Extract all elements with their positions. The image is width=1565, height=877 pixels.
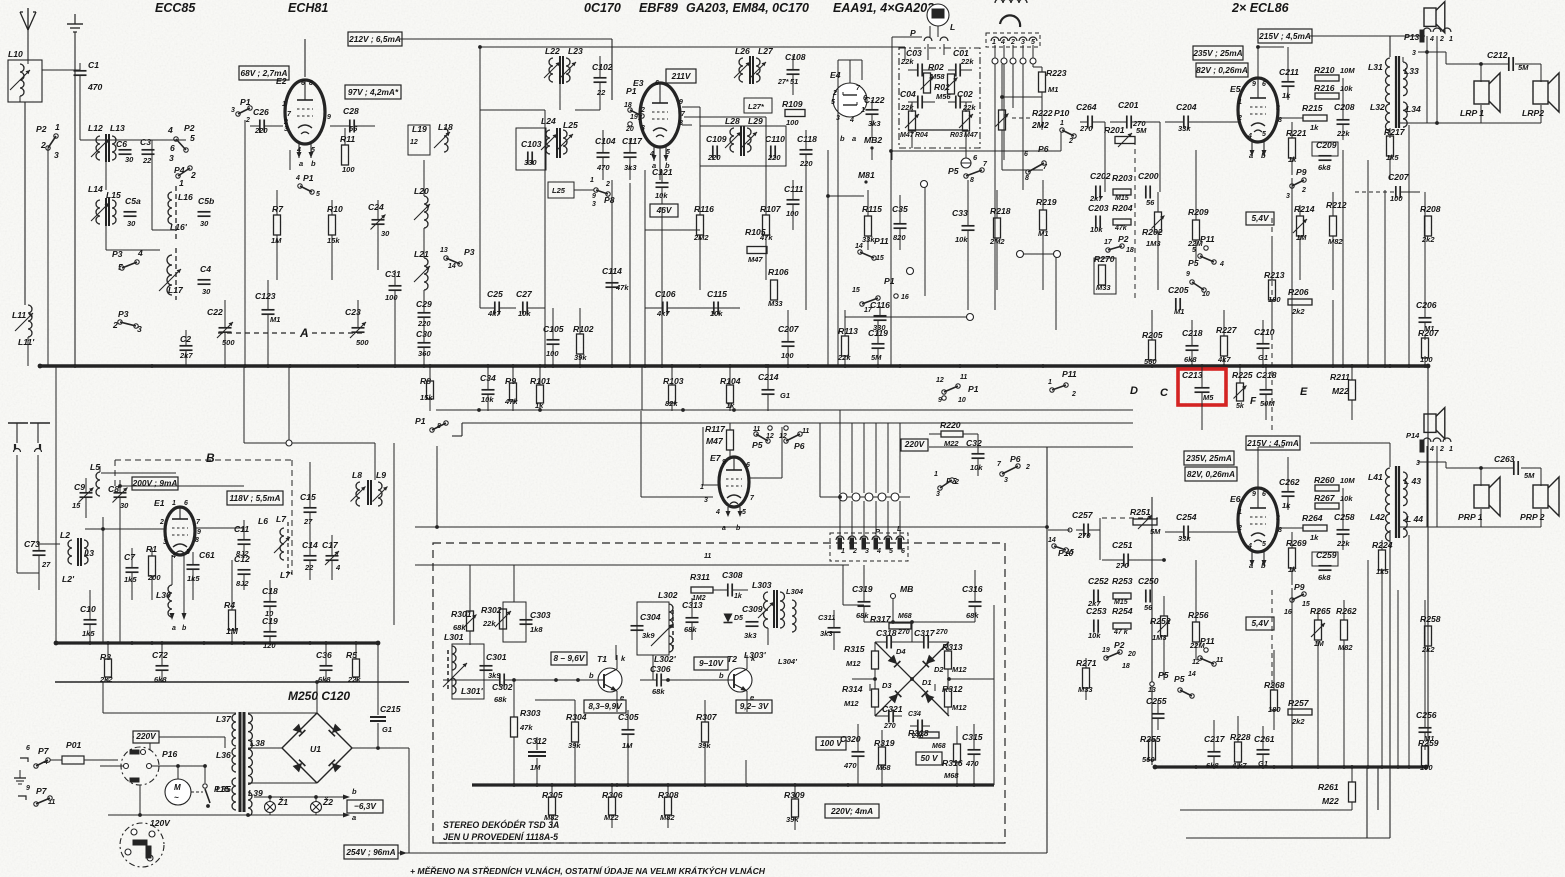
svg-text:3: 3 — [169, 153, 174, 163]
svg-text:C258: C258 — [1334, 512, 1355, 522]
svg-text:R220: R220 — [940, 420, 961, 430]
svg-text:9: 9 — [679, 99, 683, 106]
svg-text:R270: R270 — [1094, 254, 1115, 264]
svg-text:C106: C106 — [655, 289, 676, 299]
svg-text:180: 180 — [1268, 705, 1281, 714]
svg-text:8,3–9,9V: 8,3–9,9V — [588, 701, 623, 711]
svg-text:a: a — [722, 525, 726, 532]
svg-text:5: 5 — [1262, 131, 1266, 138]
svg-text:E1: E1 — [154, 498, 165, 508]
svg-text:3: 3 — [1276, 515, 1280, 522]
svg-text:C117: C117 — [622, 136, 643, 146]
svg-text:4: 4 — [1429, 446, 1434, 453]
svg-text:20: 20 — [1127, 651, 1136, 658]
svg-text:R106: R106 — [768, 267, 789, 277]
svg-text:L20: L20 — [414, 186, 429, 196]
svg-text:L9: L9 — [376, 470, 386, 480]
svg-text:L24: L24 — [541, 116, 556, 126]
svg-text:R314: R314 — [842, 684, 863, 694]
svg-text:15k: 15k — [327, 236, 340, 245]
svg-text:51: 51 — [790, 77, 798, 86]
svg-text:4: 4 — [1219, 261, 1224, 268]
svg-text:L 44: L 44 — [1406, 514, 1423, 524]
svg-text:C: C — [1160, 387, 1169, 399]
svg-text:R256: R256 — [1188, 610, 1209, 620]
svg-text:211V: 211V — [671, 71, 692, 81]
svg-text:15: 15 — [876, 255, 884, 262]
svg-text:47k: 47k — [504, 397, 518, 406]
svg-text:C3̇4: C3̇4 — [908, 711, 921, 718]
svg-text:1k5: 1k5 — [82, 629, 95, 638]
svg-text:a: a — [1249, 561, 1253, 570]
svg-text:5: 5 — [190, 133, 195, 143]
svg-text:R311: R311 — [690, 572, 710, 582]
svg-text:220: 220 — [767, 153, 781, 162]
svg-text:4: 4 — [1000, 39, 1005, 46]
svg-text:a: a — [172, 625, 176, 632]
svg-text:6: 6 — [301, 80, 305, 87]
svg-text:T1: T1 — [597, 654, 607, 664]
svg-text:2: 2 — [112, 320, 118, 330]
svg-text:68k: 68k — [453, 623, 466, 632]
svg-text:3: 3 — [54, 150, 59, 160]
svg-text:1: 1 — [1238, 509, 1242, 516]
svg-text:2k7: 2k7 — [1089, 194, 1103, 203]
svg-text:C5b: C5b — [198, 196, 214, 206]
svg-text:10k: 10k — [970, 463, 983, 472]
svg-text:4: 4 — [649, 151, 654, 158]
svg-text:97V ; 4,2mA*: 97V ; 4,2mA* — [348, 87, 399, 97]
svg-text:C316: C316 — [962, 584, 983, 594]
svg-text:1k5: 1k5 — [124, 575, 137, 584]
svg-text:C256: C256 — [1416, 710, 1437, 720]
svg-text:1M3: 1M3 — [1152, 633, 1167, 642]
svg-text:C12: C12 — [234, 554, 250, 564]
svg-text:560: 560 — [1144, 357, 1157, 366]
svg-text:47 k: 47 k — [1113, 629, 1129, 636]
svg-text:8 – 9,6V: 8 – 9,6V — [554, 653, 586, 663]
svg-text:14: 14 — [448, 263, 456, 270]
svg-text:4k7: 4k7 — [487, 309, 501, 318]
svg-text:C253: C253 — [1086, 606, 1107, 616]
svg-text:2: 2 — [852, 548, 857, 555]
svg-text:D5: D5 — [734, 615, 743, 622]
svg-text:C11: C11 — [234, 524, 249, 534]
svg-text:30: 30 — [381, 229, 390, 238]
svg-text:−6,3V: −6,3V — [354, 801, 377, 811]
svg-text:2M2: 2M2 — [693, 233, 709, 242]
svg-text:P3: P3 — [464, 247, 475, 257]
svg-text:LRP2: LRP2 — [1522, 108, 1544, 118]
svg-text:4: 4 — [1429, 36, 1434, 43]
svg-text:200: 200 — [147, 573, 161, 582]
svg-text:13: 13 — [1148, 687, 1156, 694]
svg-text:R212: R212 — [1326, 200, 1347, 210]
svg-text:R204: R204 — [1112, 203, 1133, 213]
svg-text:C15: C15 — [300, 492, 316, 502]
svg-text:30: 30 — [125, 155, 134, 164]
svg-text:220: 220 — [254, 126, 268, 135]
svg-text:L14: L14 — [88, 184, 103, 194]
svg-text:220: 220 — [707, 153, 721, 162]
svg-text:C312: C312 — [526, 736, 547, 746]
svg-text:a: a — [352, 813, 356, 822]
svg-text:11: 11 — [1216, 657, 1223, 664]
svg-text:L25: L25 — [552, 186, 566, 195]
svg-text:R211: R211 — [1330, 372, 1350, 382]
svg-text:a: a — [852, 134, 856, 143]
svg-text:MB: MB — [900, 584, 913, 594]
svg-text:2: 2 — [40, 140, 46, 150]
svg-text:M12: M12 — [844, 699, 859, 708]
svg-text:E6: E6 — [1230, 494, 1241, 504]
svg-text:5M: 5M — [1136, 126, 1147, 135]
svg-text:R262: R262 — [1336, 606, 1357, 616]
svg-text:C207: C207 — [1388, 172, 1410, 182]
svg-text:4: 4 — [1247, 543, 1252, 550]
svg-text:1k: 1k — [1282, 91, 1291, 100]
svg-text:E4: E4 — [830, 70, 841, 80]
svg-text:R201: R201 — [1104, 125, 1125, 135]
svg-text:2k2: 2k2 — [1421, 645, 1435, 654]
svg-text:R251: R251 — [1130, 507, 1151, 517]
svg-text:5,4V: 5,4V — [1251, 618, 1270, 628]
svg-text:R9: R9 — [505, 376, 516, 386]
svg-text:R222: R222 — [1032, 108, 1053, 118]
svg-text:10M: 10M — [1340, 476, 1355, 485]
svg-text:R304: R304 — [566, 712, 587, 722]
svg-text:3: 3 — [1286, 193, 1290, 200]
svg-text:F: F — [1250, 396, 1257, 407]
svg-text:1M3: 1M3 — [1146, 239, 1161, 248]
svg-text:5: 5 — [186, 549, 190, 556]
svg-text:6k8: 6k8 — [1318, 163, 1331, 172]
svg-text:Ž1: Ž1 — [277, 796, 288, 807]
svg-text:C309: C309 — [742, 604, 763, 614]
svg-text:C217: C217 — [1204, 734, 1226, 744]
svg-text:P1: P1 — [884, 276, 895, 286]
svg-text:C207: C207 — [778, 324, 800, 334]
svg-text:L13: L13 — [110, 123, 125, 133]
svg-text:L27*: L27* — [748, 102, 765, 111]
svg-text:R7: R7 — [272, 204, 284, 214]
svg-text:2k2: 2k2 — [99, 675, 113, 684]
svg-text:JEN U PROVEDENÍ 1118A-5: JEN U PROVEDENÍ 1118A-5 — [443, 832, 558, 842]
svg-text:M1: M1 — [270, 315, 280, 324]
svg-text:C200: C200 — [1138, 171, 1159, 181]
svg-text:16: 16 — [901, 294, 909, 301]
svg-text:C110: C110 — [765, 134, 785, 144]
svg-text:3: 3 — [1004, 477, 1008, 484]
svg-text:2: 2 — [283, 119, 288, 126]
svg-text:L11': L11' — [18, 337, 35, 347]
svg-text:E5: E5 — [1230, 84, 1241, 94]
svg-text:14: 14 — [855, 243, 863, 250]
svg-text:M15: M15 — [1114, 599, 1128, 606]
svg-text:P5: P5 — [752, 440, 763, 450]
svg-text:R113: R113 — [838, 326, 858, 336]
svg-text:R115: R115 — [862, 204, 882, 214]
svg-text:5M: 5M — [1524, 471, 1535, 480]
svg-text:C262: C262 — [1279, 477, 1300, 487]
svg-text:1k: 1k — [1288, 565, 1297, 574]
svg-text:8: 8 — [679, 120, 683, 127]
svg-text:M81: M81 — [858, 170, 875, 180]
svg-text:2: 2 — [1439, 36, 1444, 43]
svg-text:4: 4 — [335, 563, 341, 572]
svg-text:10M: 10M — [1340, 66, 1355, 75]
svg-text:R219: R219 — [1036, 197, 1057, 207]
svg-text:M47: M47 — [900, 132, 915, 139]
svg-text:C208: C208 — [1334, 102, 1355, 112]
svg-text:a: a — [1249, 151, 1253, 160]
svg-text:39k: 39k — [786, 815, 799, 824]
svg-text:2: 2 — [954, 479, 959, 486]
svg-text:270: 270 — [935, 629, 948, 636]
svg-text:R105: R105 — [745, 227, 766, 237]
svg-text:11: 11 — [704, 553, 711, 560]
svg-text:1: 1 — [934, 471, 938, 478]
svg-text:3: 3 — [284, 126, 288, 133]
svg-text:10k: 10k — [1340, 494, 1353, 503]
svg-text:P2: P2 — [184, 123, 195, 133]
svg-text:R223: R223 — [1046, 68, 1067, 78]
svg-text:22k: 22k — [837, 353, 851, 362]
svg-text:1M: 1M — [530, 763, 541, 772]
svg-text:L18: L18 — [438, 122, 453, 132]
svg-text:6: 6 — [901, 548, 905, 555]
svg-text:C317: C317 — [914, 628, 936, 638]
svg-text:22k: 22k — [482, 619, 496, 628]
svg-text:R216: R216 — [1314, 83, 1335, 93]
svg-text:100: 100 — [1420, 355, 1433, 364]
svg-text:C24: C24 — [368, 202, 384, 212]
svg-text:3k3: 3k3 — [868, 119, 881, 128]
svg-text:R258: R258 — [1420, 614, 1441, 624]
svg-text:L303: L303 — [752, 580, 772, 590]
svg-text:b: b — [311, 159, 316, 168]
svg-text:P15: P15 — [214, 784, 230, 794]
svg-text:GA203, EM84, 0C170: GA203, EM84, 0C170 — [686, 1, 809, 15]
svg-text:30: 30 — [120, 501, 129, 510]
svg-text:100: 100 — [385, 293, 398, 302]
svg-text:R228: R228 — [1230, 732, 1251, 742]
svg-text:P11: P11 — [1200, 234, 1215, 244]
svg-text:500: 500 — [222, 338, 235, 347]
svg-text:50 V: 50 V — [920, 753, 939, 763]
svg-text:L7: L7 — [276, 514, 287, 524]
svg-text:P11: P11 — [874, 236, 889, 246]
svg-text:9: 9 — [327, 114, 331, 121]
svg-text:R209: R209 — [1188, 207, 1209, 217]
svg-text:22k: 22k — [900, 57, 914, 66]
svg-text:C264: C264 — [1076, 102, 1097, 112]
svg-text:2: 2 — [1071, 391, 1076, 398]
svg-text:C102: C102 — [592, 62, 613, 72]
svg-text:M22: M22 — [1332, 386, 1349, 396]
svg-text:6: 6 — [746, 462, 750, 469]
svg-text:L31: L31 — [1368, 62, 1383, 72]
svg-text:C25: C25 — [487, 289, 503, 299]
svg-text:1k: 1k — [1288, 155, 1297, 164]
svg-text:STEREO DEKÓDÉR TSD 3A: STEREO DEKÓDÉR TSD 3A — [443, 819, 559, 830]
svg-text:C205: C205 — [1168, 285, 1189, 295]
svg-text:2: 2 — [1237, 525, 1242, 532]
svg-text:3: 3 — [1416, 460, 1420, 467]
svg-text:L32: L32 — [1370, 102, 1385, 112]
svg-text:47k: 47k — [519, 723, 533, 732]
svg-text:R10: R10 — [327, 204, 343, 214]
svg-text:R210: R210 — [1314, 65, 1335, 75]
svg-text:C4: C4 — [200, 264, 211, 274]
svg-text:2: 2 — [1301, 187, 1306, 194]
svg-text:P7: P7 — [38, 746, 50, 756]
svg-text:R260: R260 — [1314, 475, 1335, 485]
svg-text:4: 4 — [167, 125, 173, 135]
svg-text:R218: R218 — [990, 206, 1011, 216]
svg-text:470: 470 — [843, 761, 857, 770]
svg-text:1: 1 — [1060, 120, 1064, 127]
svg-text:5: 5 — [742, 509, 746, 516]
svg-text:9–10V: 9–10V — [699, 658, 724, 668]
svg-text:C26: C26 — [253, 107, 269, 117]
svg-text:100: 100 — [1390, 194, 1403, 203]
svg-text:100: 100 — [1420, 763, 1433, 772]
svg-text:C212: C212 — [1487, 50, 1508, 60]
svg-text:M1: M1 — [1174, 307, 1184, 316]
svg-text:6: 6 — [1262, 81, 1266, 88]
svg-text:14: 14 — [1188, 671, 1196, 678]
svg-text:2k2: 2k2 — [1421, 235, 1435, 244]
svg-text:C308: C308 — [722, 570, 743, 580]
svg-text:1M: 1M — [1314, 641, 1324, 648]
svg-text:5: 5 — [666, 149, 670, 156]
svg-text:C315: C315 — [962, 732, 983, 742]
svg-text:100: 100 — [342, 165, 355, 174]
svg-text:L302': L302' — [654, 654, 677, 664]
svg-text:L303': L303' — [744, 650, 767, 660]
svg-text:C302: C302 — [492, 682, 513, 692]
svg-text:5M: 5M — [1150, 527, 1161, 536]
svg-text:3: 3 — [1021, 39, 1025, 46]
svg-text:C04: C04 — [900, 89, 916, 99]
svg-text:3: 3 — [641, 125, 645, 132]
svg-text:C301: C301 — [486, 652, 507, 662]
svg-text:3: 3 — [592, 201, 596, 208]
svg-text:R207: R207 — [1418, 328, 1440, 338]
svg-text:L33: L33 — [1404, 66, 1419, 76]
svg-text:C257: C257 — [1072, 510, 1094, 520]
svg-text:P16: P16 — [162, 749, 178, 759]
svg-text:G1: G1 — [382, 725, 392, 734]
svg-text:C201: C201 — [1118, 100, 1139, 110]
svg-text:82V, 0,26mA: 82V, 0,26mA — [1187, 469, 1235, 479]
svg-text:P1: P1 — [968, 384, 979, 394]
svg-text:P3: P3 — [118, 309, 129, 319]
svg-text:b: b — [589, 671, 594, 680]
svg-text:6: 6 — [184, 500, 188, 507]
svg-text:8: 8 — [195, 537, 199, 544]
svg-text:R213: R213 — [1264, 270, 1285, 280]
svg-text:5,4V: 5,4V — [1251, 213, 1270, 223]
svg-text:C251: C251 — [1112, 540, 1133, 550]
svg-text:C23: C23 — [345, 307, 361, 317]
svg-text:10k: 10k — [518, 309, 531, 318]
svg-text:C27: C27 — [516, 289, 533, 299]
svg-text:14: 14 — [1048, 537, 1056, 544]
svg-text:8: 8 — [309, 80, 313, 87]
svg-text:12: 12 — [936, 377, 944, 384]
svg-text:270: 270 — [1077, 531, 1091, 540]
svg-text:500: 500 — [356, 338, 369, 347]
svg-text:560: 560 — [1142, 755, 1155, 764]
svg-text:R117: R117 — [705, 424, 726, 434]
svg-text:G1: G1 — [780, 391, 790, 400]
svg-text:3: 3 — [1412, 50, 1416, 57]
svg-text:C215: C215 — [380, 704, 401, 714]
svg-text:1k5: 1k5 — [1376, 567, 1389, 576]
svg-text:P1: P1 — [303, 173, 314, 183]
svg-text:11: 11 — [802, 428, 809, 435]
svg-text:C304: C304 — [640, 612, 661, 622]
svg-text:1: 1 — [861, 107, 865, 114]
svg-text:L26: L26 — [735, 46, 750, 56]
svg-text:C33: C33 — [952, 208, 968, 218]
svg-text:1: 1 — [55, 122, 60, 132]
svg-text:R254: R254 — [1112, 606, 1133, 616]
svg-text:A: A — [299, 326, 309, 340]
svg-text:6k8: 6k8 — [1318, 573, 1331, 582]
svg-text:6: 6 — [1024, 151, 1028, 158]
svg-text:4: 4 — [849, 117, 854, 124]
svg-text:2: 2 — [1025, 464, 1030, 471]
svg-text:1: 1 — [1449, 446, 1453, 453]
svg-text:C203: C203 — [1088, 203, 1109, 213]
svg-text:C73: C73 — [24, 539, 40, 549]
svg-text:R203: R203 — [1112, 173, 1133, 183]
svg-text:L12: L12 — [88, 123, 103, 133]
svg-text:1k: 1k — [1310, 533, 1319, 542]
svg-text:R261: R261 — [1318, 782, 1339, 792]
svg-text:R03: R03 — [950, 132, 963, 139]
svg-text:9: 9 — [1252, 491, 1256, 498]
svg-text:2: 2 — [1068, 138, 1073, 145]
svg-text:C118: C118 — [797, 134, 817, 144]
svg-text:2: 2 — [1439, 446, 1444, 453]
svg-text:5: 5 — [1192, 247, 1196, 254]
svg-text:6k8: 6k8 — [1206, 761, 1219, 770]
svg-text:330: 330 — [524, 158, 537, 167]
svg-text:1k: 1k — [1282, 501, 1291, 510]
svg-text:180: 180 — [1268, 295, 1281, 304]
svg-text:215V ; 4,5mA: 215V ; 4,5mA — [1258, 31, 1311, 41]
svg-text:R316: R316 — [942, 758, 963, 768]
svg-text:1: 1 — [1048, 379, 1052, 386]
svg-text:1k5: 1k5 — [1386, 153, 1399, 162]
svg-text:9: 9 — [1252, 81, 1256, 88]
svg-text:L301': L301' — [461, 686, 484, 696]
svg-text:P6: P6 — [794, 441, 805, 451]
svg-text:U1: U1 — [310, 744, 321, 754]
svg-text:L304: L304 — [786, 587, 804, 596]
svg-text:P6: P6 — [1010, 454, 1021, 464]
svg-text:C31: C31 — [385, 269, 401, 279]
svg-text:3k3: 3k3 — [624, 163, 637, 172]
svg-text:+ MĚŘENO NA STŘEDNÍCH VLNÁCH,: + MĚŘENO NA STŘEDNÍCH VLNÁCH, OSTATNÍ ÚD… — [410, 865, 766, 876]
svg-text:a: a — [299, 159, 303, 168]
svg-text:30: 30 — [200, 219, 209, 228]
svg-text:~: ~ — [174, 793, 179, 802]
